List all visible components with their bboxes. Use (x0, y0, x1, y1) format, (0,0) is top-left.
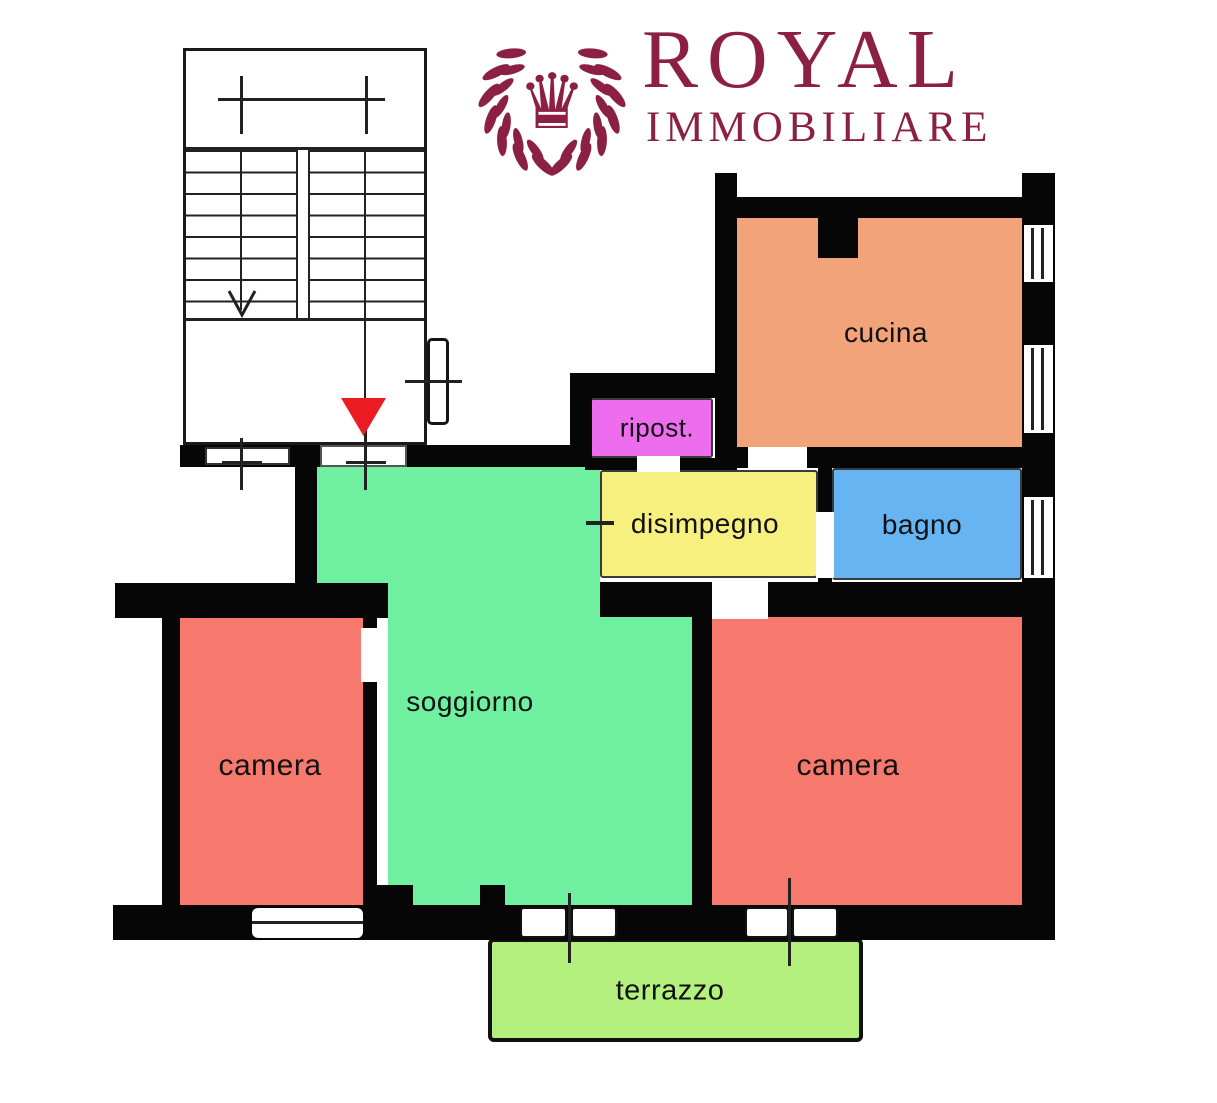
stair-window-tick (240, 76, 243, 134)
stair-landing-line (186, 318, 424, 321)
window-pane-line (1031, 228, 1034, 279)
room-label-terrazzo: terrazzo (616, 975, 725, 1008)
wall (115, 583, 388, 618)
room-soggiorno (388, 583, 692, 905)
stair-guide-line (240, 148, 242, 310)
wall-stub (480, 885, 505, 908)
door-camera-right (712, 580, 768, 619)
door-bagno (816, 512, 834, 578)
room-label-cucina: cucina (844, 317, 928, 349)
logo-crown-laurel-icon: ♛ (466, 18, 638, 186)
room-soggiorno (317, 467, 600, 585)
logo-title: ROYAL (642, 18, 967, 102)
wall (737, 197, 1022, 218)
wall (162, 605, 180, 905)
guide-line (240, 438, 243, 490)
wall (692, 617, 712, 905)
door-terrazzo-camera-pane (792, 907, 838, 938)
window-pane-line (1041, 348, 1044, 430)
stair-divider (296, 148, 310, 320)
door-center-line (568, 893, 571, 963)
floor-plan-page: ♛ ROYAL IMMOBILIARE (0, 0, 1217, 1103)
door-terrazzo-soggiorno-pane (571, 907, 617, 938)
wall-kitchen-notch (818, 212, 858, 258)
logo-subtitle: IMMOBILIARE (646, 106, 992, 149)
window-pane-line (1031, 500, 1034, 575)
opening-tick-disimpegno (586, 521, 614, 525)
door-terrazzo-soggiorno-pane (520, 907, 567, 938)
wall (600, 582, 1053, 617)
room-label-camera-left: camera (218, 749, 321, 783)
wall (715, 173, 737, 470)
stair-window-line (218, 98, 385, 101)
window-cucina-2 (1024, 345, 1053, 433)
svg-text:♛: ♛ (518, 58, 587, 147)
guide-tick (346, 461, 386, 464)
window-cucina-1 (1024, 225, 1053, 282)
room-label-ripostiglio: ripost. (620, 413, 694, 444)
window-pane-line (1031, 348, 1034, 430)
stair-down-arrow-icon (226, 288, 258, 318)
room-label-disimpegno: disimpegno (631, 508, 779, 540)
wall-stub (368, 885, 413, 908)
room-label-bagno: bagno (882, 509, 962, 541)
door-ripostiglio (637, 456, 680, 472)
window-pane-line (1041, 228, 1044, 279)
stair-side-door-line (405, 380, 462, 383)
door-center-line (788, 878, 791, 966)
wall (570, 373, 737, 398)
stair-guide-line (364, 148, 366, 398)
room-label-camera-right: camera (796, 749, 899, 783)
window-bagno (1024, 497, 1053, 578)
door-camera-left (361, 628, 379, 682)
guide-tick (222, 461, 262, 464)
window-pane-line (1041, 500, 1044, 575)
stair-flight-right (310, 150, 424, 320)
door-terrazzo-camera-pane (745, 907, 789, 938)
door-cucina (748, 447, 807, 468)
room-label-soggiorno: soggiorno (406, 686, 533, 718)
stair-window-tick (365, 76, 368, 134)
window-pane-line (252, 921, 363, 924)
